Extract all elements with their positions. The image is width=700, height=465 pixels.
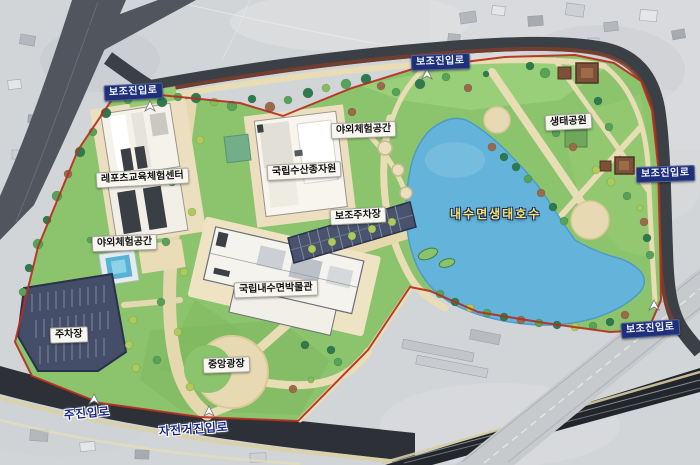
label-aux-entrance-east: 보조진입로 [636,165,695,183]
lakeside-plaza-circle [571,201,609,239]
main-parking-lot [18,274,126,371]
label-eco-park: 생태공원 [545,113,593,131]
site-plan-map-artwork [0,0,700,465]
label-museum: 국립내수면박물관 [234,280,318,299]
site-plan-screenshot: 보조진입로 보조진입로 보조진입로 보조진입로 레포츠교육체험센터 국립수산종자… [0,0,700,465]
label-outdoor-experience-north: 야외체험공간 [331,121,397,139]
label-aux-entrance-north: 보조진입로 [411,53,470,71]
label-aux-entrance-northwest: 보조진입로 [104,82,163,101]
label-outdoor-experience-west: 야외체험공간 [92,234,158,252]
north-plaza-circle [484,107,510,133]
label-main-parking: 주차장 [50,326,88,343]
label-lake: 내수면생태호수 [450,208,541,220]
label-central-plaza: 중앙광장 [203,356,250,374]
label-aux-parking: 보조주차장 [330,207,387,226]
